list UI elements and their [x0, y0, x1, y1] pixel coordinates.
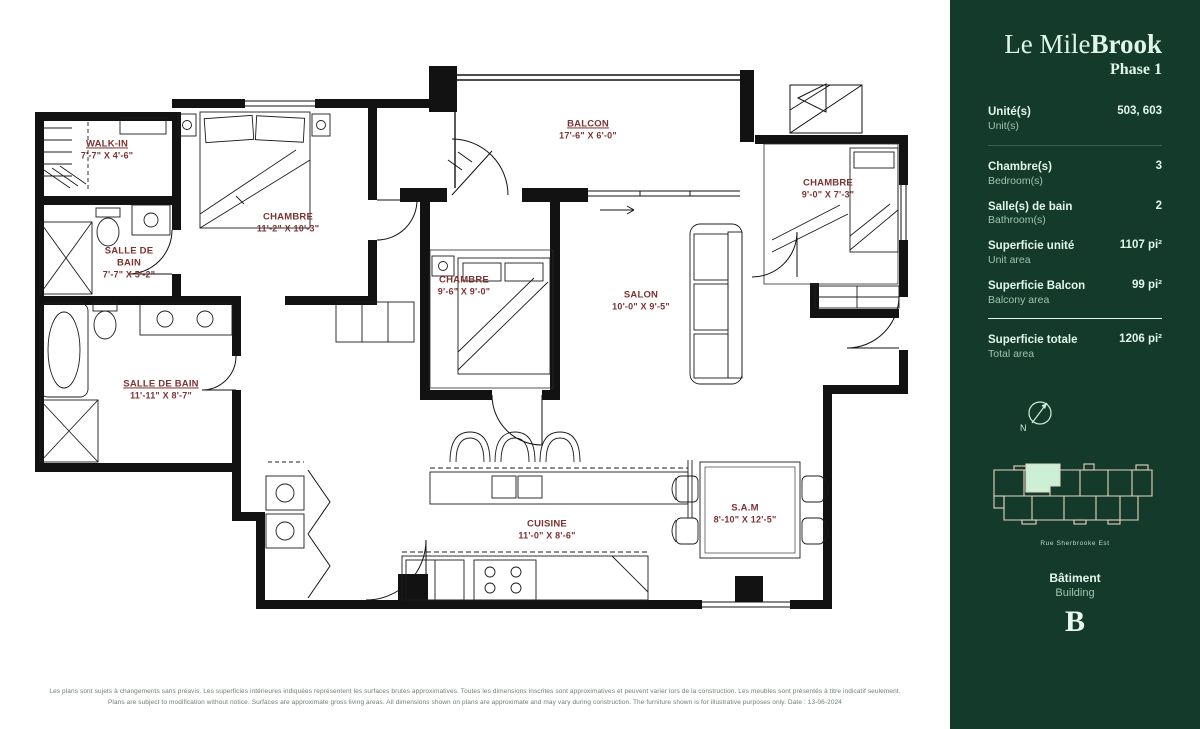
room-label-salon: SALON 10'-0" X 9'-5" — [612, 289, 670, 312]
stat-row-bedrooms: Chambre(s) Bedroom(s) 3 — [988, 160, 1162, 189]
stat-row-unit-area: Superficie unité Unit area 1107 pi² — [988, 239, 1162, 268]
stat-value: 503, 603 — [1117, 105, 1162, 117]
room-label-balcon: BALCON 17'-6" X 6'-0" — [559, 118, 617, 141]
stat-label: Unité(s) — [988, 105, 1031, 120]
plan-area: WALK-IN 7'-7" X 4'-6" SALLE DE BAIN 7'-7… — [0, 0, 950, 729]
phase-label: Phase 1 — [988, 61, 1162, 79]
kitchen-fixtures — [402, 432, 692, 600]
floorplan-drawing — [0, 0, 950, 729]
terrace — [790, 84, 862, 133]
stat-row-total-area: Superficie totale Total area 1206 pi² — [988, 333, 1162, 362]
room-label-sam: S.A.M 8'-10" X 12'-5" — [714, 502, 777, 525]
stat-sublabel: Unit area — [988, 254, 1074, 268]
stat-value: 1107 pi² — [1120, 239, 1162, 251]
unit-highlight — [1026, 464, 1060, 492]
room-label-walk-in: WALK-IN 7'-7" X 4'-6" — [81, 138, 133, 161]
building-label-en: Building — [988, 587, 1162, 599]
building-block: Bâtiment Building B — [988, 571, 1162, 639]
divider — [988, 145, 1162, 146]
room-label-salle-de-bain-large: SALLE DE BAIN 11'-11" X 8'-7" — [123, 378, 198, 401]
stat-label: Superficie unité — [988, 239, 1074, 254]
furniture — [40, 112, 899, 600]
title-bold: Brook — [1090, 29, 1162, 59]
stat-label: Superficie totale — [988, 333, 1077, 348]
stat-row-units: Unité(s) Unit(s) 503, 603 — [988, 105, 1162, 134]
balcony-outline — [455, 75, 740, 214]
stat-value: 1206 pi² — [1119, 333, 1162, 345]
doors — [128, 139, 899, 600]
stat-value: 99 pi² — [1132, 279, 1162, 291]
stat-row-balcony-area: Superficie Balcon Balcony area 99 pi² — [988, 279, 1162, 308]
linen-closet-icon — [336, 302, 414, 342]
building-footprint-map — [988, 456, 1162, 534]
stat-value: 2 — [1156, 200, 1162, 212]
disclaimer-line-en: Plans are subject to modification withou… — [0, 698, 950, 708]
stat-sublabel: Unit(s) — [988, 120, 1031, 134]
building-letter: B — [988, 605, 1162, 639]
room-label-salle-de-bain-small: SALLE DE BAIN 7'-7" X 5'-2" — [97, 246, 161, 281]
room-label-cuisine: CUISINE 11'-0" X 8'-6" — [518, 518, 575, 541]
room-label-chambre-3: CHAMBRE 9'-0" X 7'-3" — [802, 177, 854, 200]
stat-label: Salle(s) de bain — [988, 200, 1072, 215]
building-label-fr: Bâtiment — [988, 571, 1162, 585]
stat-sublabel: Balcony area — [988, 294, 1085, 308]
disclaimer: Les plans sont sujets à changements sans… — [0, 687, 950, 708]
stat-sublabel: Bathroom(s) — [988, 214, 1072, 228]
north-compass-icon: N — [1016, 395, 1060, 437]
room-label-chambre-2: CHAMBRE 9'-6" X 9'-0" — [438, 274, 490, 297]
room-label-chambre-1: CHAMBRE 11'-2" X 10'-3" — [257, 211, 319, 234]
sofa-icon — [690, 224, 742, 384]
svg-text:N: N — [1020, 423, 1027, 433]
divider — [988, 318, 1162, 319]
walls — [35, 66, 908, 609]
info-sidebar: Le MileBrook Phase 1 Unité(s) Unit(s) 50… — [950, 0, 1200, 729]
stat-label: Superficie Balcon — [988, 279, 1085, 294]
street-caption: Rue Sherbrooke Est — [988, 540, 1162, 547]
project-title: Le MileBrook — [988, 30, 1162, 58]
stat-sublabel: Total area — [988, 348, 1077, 362]
title-regular: Le Mile — [1004, 29, 1090, 59]
laundry-icon — [266, 462, 304, 548]
stat-value: 3 — [1156, 160, 1162, 172]
unit-stats: Unité(s) Unit(s) 503, 603 Chambre(s) Bed… — [988, 105, 1162, 361]
stat-sublabel: Bedroom(s) — [988, 175, 1052, 189]
disclaimer-line-fr: Les plans sont sujets à changements sans… — [0, 687, 950, 697]
stat-label: Chambre(s) — [988, 160, 1052, 175]
floorplan-sheet: WALK-IN 7'-7" X 4'-6" SALLE DE BAIN 7'-7… — [0, 0, 1200, 729]
stat-row-bathrooms: Salle(s) de bain Bathroom(s) 2 — [988, 200, 1162, 229]
